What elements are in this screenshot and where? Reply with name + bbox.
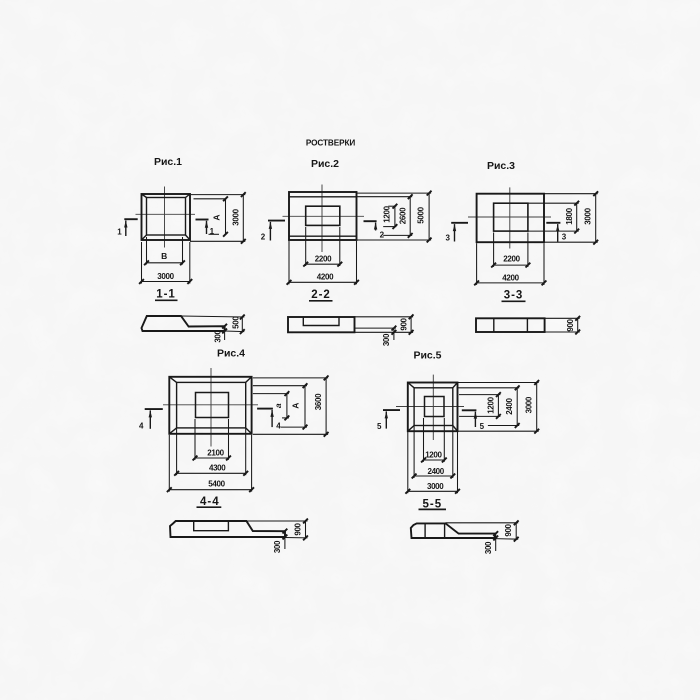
svg-text:A: A xyxy=(212,215,222,221)
svg-text:Рис.3: Рис.3 xyxy=(487,160,515,172)
svg-text:2200: 2200 xyxy=(503,255,520,264)
svg-text:2200: 2200 xyxy=(315,255,332,264)
svg-text:1200: 1200 xyxy=(425,450,442,459)
svg-text:Рис.2: Рис.2 xyxy=(311,158,339,170)
svg-text:4300: 4300 xyxy=(209,464,226,473)
svg-text:300: 300 xyxy=(484,541,493,554)
svg-text:4: 4 xyxy=(276,421,281,430)
svg-text:2100: 2100 xyxy=(207,448,224,457)
svg-text:B: B xyxy=(161,251,167,261)
svg-text:3000: 3000 xyxy=(231,208,240,225)
svg-text:900: 900 xyxy=(566,318,575,331)
svg-text:4-4: 4-4 xyxy=(200,496,220,508)
svg-text:2400: 2400 xyxy=(427,467,444,476)
svg-text:Рис.5: Рис.5 xyxy=(413,350,441,362)
svg-text:3: 3 xyxy=(445,234,450,243)
svg-text:300: 300 xyxy=(382,333,391,346)
svg-text:5: 5 xyxy=(377,422,382,431)
svg-text:3000: 3000 xyxy=(157,272,174,281)
svg-text:Рис.4: Рис.4 xyxy=(217,347,245,359)
svg-text:5-5: 5-5 xyxy=(422,498,442,510)
svg-text:900: 900 xyxy=(294,522,303,535)
svg-text:РОСТВЕРКИ: РОСТВЕРКИ xyxy=(306,139,355,148)
svg-text:5000: 5000 xyxy=(417,206,426,223)
svg-text:A: A xyxy=(291,403,301,409)
svg-text:5400: 5400 xyxy=(208,480,225,489)
svg-text:1: 1 xyxy=(117,228,122,237)
svg-text:Рис.1: Рис.1 xyxy=(154,156,182,168)
svg-text:2-2: 2-2 xyxy=(311,289,331,301)
svg-text:2: 2 xyxy=(261,232,266,241)
svg-text:4: 4 xyxy=(139,421,144,430)
svg-text:3: 3 xyxy=(562,233,567,242)
svg-text:4200: 4200 xyxy=(317,273,334,282)
svg-text:1200: 1200 xyxy=(383,205,392,222)
svg-text:3000: 3000 xyxy=(427,482,444,491)
svg-text:2600: 2600 xyxy=(399,207,408,224)
svg-text:3-3: 3-3 xyxy=(504,290,524,302)
svg-text:3600: 3600 xyxy=(314,393,323,410)
svg-text:300: 300 xyxy=(214,329,223,342)
svg-text:5: 5 xyxy=(480,422,485,431)
svg-text:300: 300 xyxy=(273,540,282,553)
svg-text:2400: 2400 xyxy=(505,398,514,415)
svg-text:900: 900 xyxy=(399,317,408,330)
svg-text:1200: 1200 xyxy=(486,396,495,413)
svg-text:a: a xyxy=(273,403,283,408)
svg-text:1-1: 1-1 xyxy=(156,289,176,301)
svg-text:500: 500 xyxy=(231,316,240,329)
svg-text:4200: 4200 xyxy=(502,274,519,283)
svg-text:900: 900 xyxy=(504,523,513,536)
svg-text:3000: 3000 xyxy=(525,396,534,413)
svg-text:1800: 1800 xyxy=(565,207,574,224)
svg-text:3000: 3000 xyxy=(584,207,593,224)
